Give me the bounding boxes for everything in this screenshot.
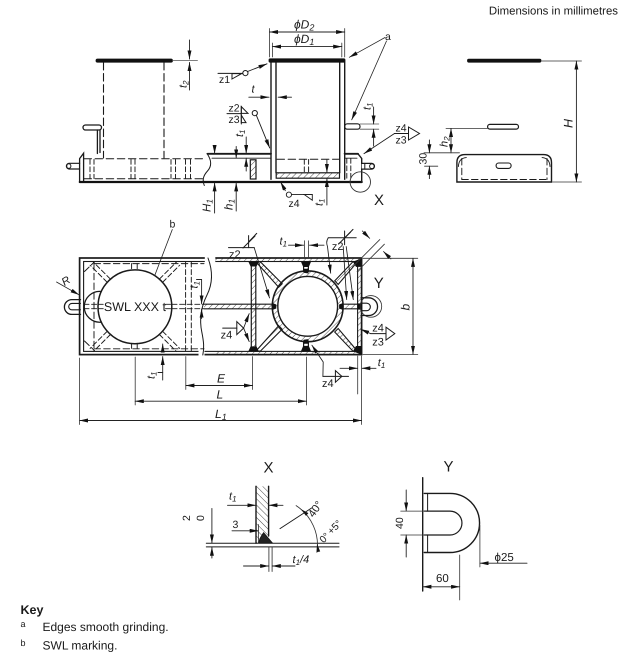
svg-text:z3: z3 [396, 135, 407, 147]
svg-text:t1: t1 [189, 281, 202, 289]
svg-text:z4: z4 [322, 378, 334, 390]
svg-text:40°: 40° [306, 499, 325, 520]
svg-text:Dimensions in millimetres: Dimensions in millimetres [489, 6, 618, 18]
svg-text:z4: z4 [396, 123, 407, 135]
svg-text:z2: z2 [229, 249, 241, 261]
svg-text:Key: Key [21, 603, 44, 617]
svg-text:ϕ25: ϕ25 [495, 552, 514, 564]
svg-text:t1/4: t1/4 [293, 554, 310, 567]
svg-text:z4: z4 [289, 198, 300, 210]
svg-text:30: 30 [418, 153, 430, 165]
svg-text:H1: H1 [202, 199, 215, 212]
svg-text:h2: h2 [439, 136, 452, 147]
svg-text:t1: t1 [280, 235, 288, 248]
svg-text:3: 3 [233, 519, 239, 531]
svg-text:z3: z3 [372, 337, 384, 349]
svg-text:t1: t1 [362, 102, 375, 110]
svg-text:Y: Y [444, 459, 454, 476]
svg-text:40: 40 [394, 517, 406, 529]
svg-text:H: H [562, 118, 576, 128]
svg-text:h1: h1 [224, 199, 237, 210]
svg-text:t1: t1 [234, 129, 247, 137]
svg-text:z4: z4 [372, 323, 384, 335]
svg-text:SWL XXX t: SWL XXX t [104, 300, 167, 314]
svg-text:t1: t1 [229, 491, 237, 504]
svg-text:0: 0 [195, 515, 207, 521]
svg-text:60: 60 [436, 573, 449, 585]
svg-text:+5°: +5° [326, 518, 345, 537]
svg-text:E: E [217, 371, 226, 385]
svg-text:L: L [217, 388, 224, 402]
svg-text:t2: t2 [178, 80, 191, 88]
svg-text:t1: t1 [378, 357, 386, 370]
svg-text:a: a [21, 619, 26, 629]
svg-text:X: X [264, 460, 274, 477]
svg-text:ϕD2: ϕD2 [294, 18, 314, 33]
svg-text:t: t [252, 84, 256, 96]
svg-text:SWL marking.: SWL marking. [43, 639, 118, 653]
svg-text:z2: z2 [229, 102, 240, 114]
svg-text:z1: z1 [219, 74, 230, 86]
svg-text:t1: t1 [314, 198, 327, 206]
svg-text:b: b [170, 219, 176, 231]
svg-text:a: a [385, 31, 391, 43]
svg-text:b: b [21, 638, 26, 648]
svg-text:Y: Y [374, 275, 384, 292]
svg-text:z2: z2 [332, 241, 344, 253]
svg-text:t1: t1 [146, 371, 159, 379]
svg-text:R: R [60, 274, 73, 288]
svg-text:z4: z4 [221, 330, 233, 342]
svg-text:2: 2 [181, 515, 193, 521]
svg-text:z3: z3 [229, 114, 240, 126]
svg-text:Edges smooth grinding.: Edges smooth grinding. [43, 620, 169, 634]
svg-text:X: X [374, 192, 384, 209]
svg-text:ϕD1: ϕD1 [294, 32, 314, 47]
svg-text:L1: L1 [215, 407, 227, 422]
svg-text:b: b [399, 304, 413, 311]
